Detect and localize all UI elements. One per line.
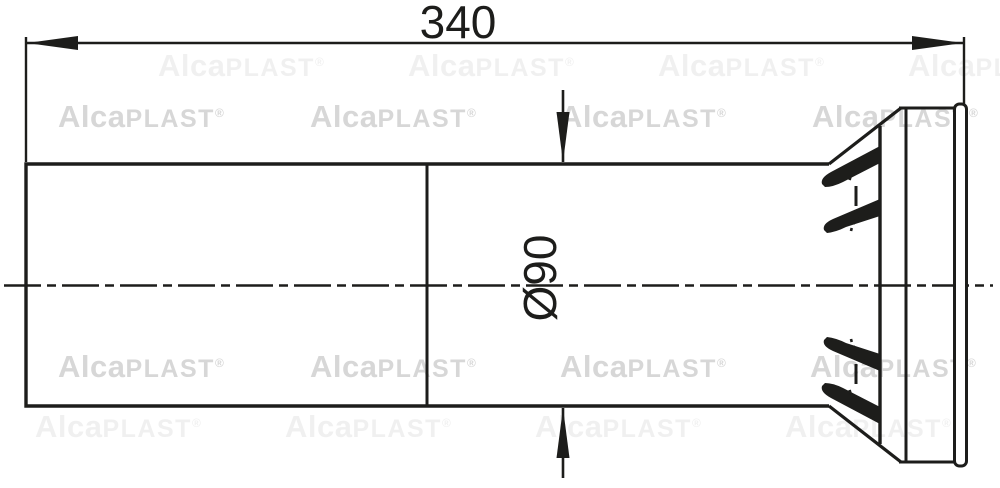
left-arrowhead (27, 36, 78, 50)
diameter-top-arrowhead (557, 112, 570, 162)
diameter-dimension: Ø90 (514, 90, 570, 478)
diameter-bottom-arrowhead (557, 408, 570, 458)
right-arrowhead (912, 36, 963, 50)
technical-drawing-canvas: AlcaPLAST®AlcaPLAST®AlcaPLAST®AlcaPLAST®… (0, 0, 1000, 488)
diameter-dimension-label: Ø90 (514, 235, 566, 322)
pipe-connector-drawing: 340 (0, 0, 1000, 488)
length-dimension-label: 340 (420, 0, 497, 48)
flange-rim-bar (955, 104, 967, 466)
length-dimension: 340 (26, 0, 964, 162)
